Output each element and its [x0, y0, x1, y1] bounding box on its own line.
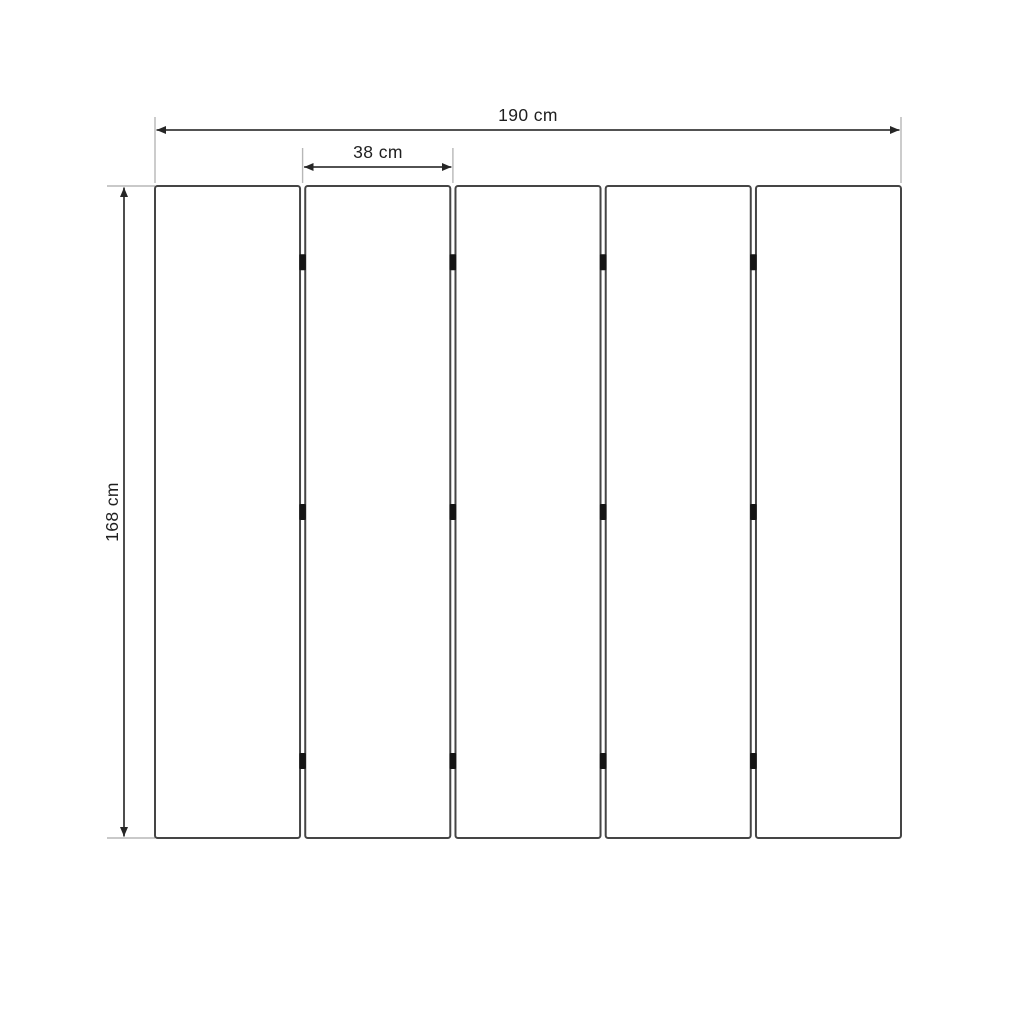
- panel-3: [455, 186, 600, 838]
- hinge-mark-gap1-row3: [299, 753, 306, 769]
- hinge-mark-gap2-row1: [450, 254, 457, 270]
- dimension-label-panel-width: 38 cm: [353, 142, 403, 162]
- dimension-panel-width: 38 cm: [303, 142, 453, 183]
- dimension-label-total-width: 190 cm: [498, 105, 558, 125]
- hinge-mark-gap2-row3: [450, 753, 457, 769]
- dimension-height: 168 cm: [102, 186, 155, 838]
- panels-group: [155, 186, 901, 838]
- dimension-label-height: 168 cm: [102, 482, 122, 542]
- panel-4: [606, 186, 751, 838]
- hinge-mark-gap2-row2: [450, 504, 457, 520]
- panel-2: [305, 186, 450, 838]
- panel-5: [756, 186, 901, 838]
- hinge-mark-gap3-row2: [600, 504, 607, 520]
- hinge-mark-gap3-row1: [600, 254, 607, 270]
- panel-1: [155, 186, 300, 838]
- technical-drawing-canvas: 190 cm 38 cm 168 cm: [0, 0, 1024, 1024]
- hinge-mark-gap1-row1: [299, 254, 306, 270]
- panel-drawing: 190 cm 38 cm 168 cm: [0, 0, 1024, 1024]
- hinge-mark-gap4-row3: [750, 753, 757, 769]
- hinge-mark-gap4-row2: [750, 504, 757, 520]
- hinge-mark-gap1-row2: [299, 504, 306, 520]
- dimension-total-width: 190 cm: [155, 105, 901, 183]
- hinge-mark-gap3-row3: [600, 753, 607, 769]
- hinge-mark-gap4-row1: [750, 254, 757, 270]
